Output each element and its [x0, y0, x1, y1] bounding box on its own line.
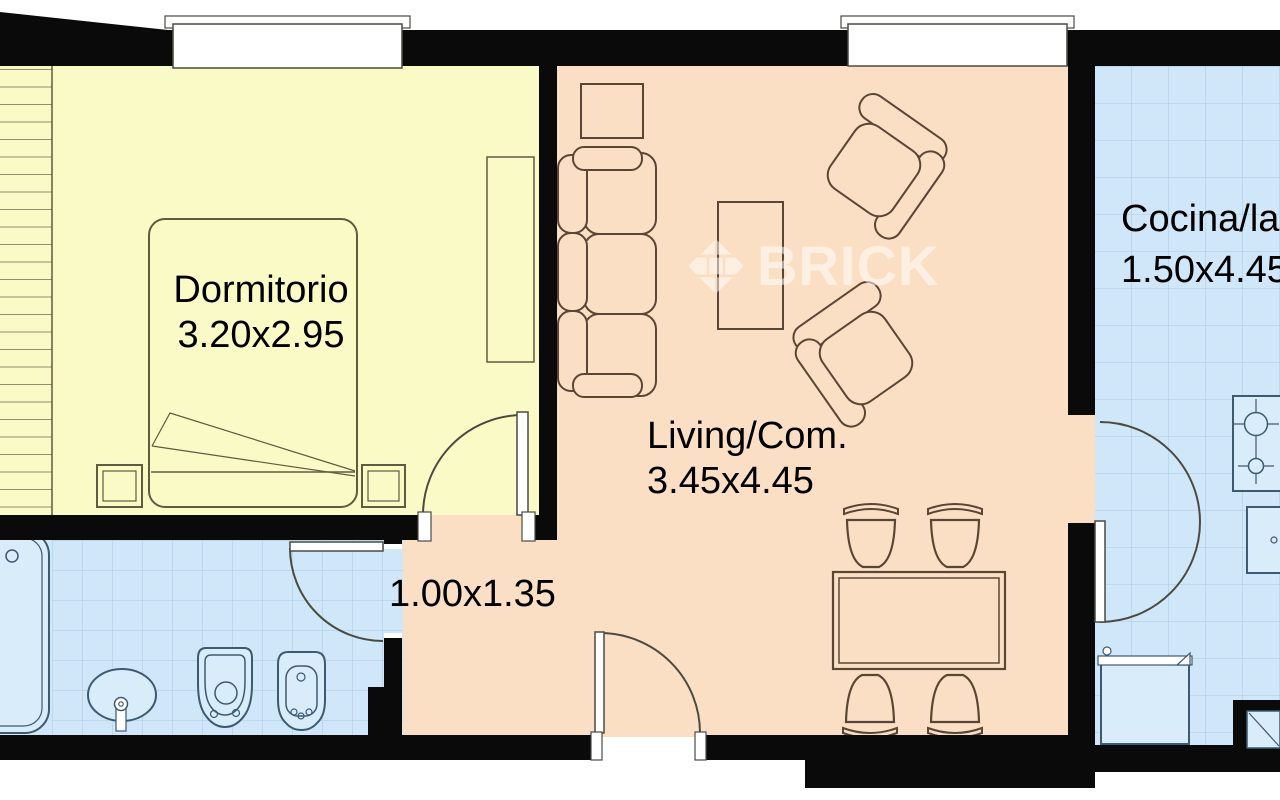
wall [1068, 523, 1095, 788]
side-table [581, 84, 643, 138]
nightstand-right [362, 465, 405, 507]
hall-dims: 1.00x1.35 [389, 572, 556, 617]
bathtub-icon [0, 531, 49, 733]
brick-diamond-logo-icon [688, 238, 744, 294]
wardrobe [487, 157, 534, 362]
wall [0, 515, 421, 540]
wall [1095, 745, 1233, 772]
living-dims: 3.45x4.45 [647, 459, 848, 504]
living-window [841, 16, 1074, 66]
wall [384, 530, 402, 544]
living-name: Living/Com. [647, 414, 848, 459]
wall [368, 687, 402, 735]
wall [0, 735, 591, 760]
stove-icon [1233, 396, 1280, 491]
wall [1068, 66, 1095, 415]
bedroom-label: Dormitorio 3.20x2.95 [136, 268, 386, 358]
wall [539, 66, 557, 540]
sofa [558, 147, 656, 397]
watermark-text: BRICK [757, 237, 939, 294]
hall-label: 1.00x1.35 [389, 572, 556, 617]
wall [706, 735, 805, 760]
bed [149, 219, 357, 507]
nightstand-left [97, 465, 142, 507]
watermark: BRICK [688, 237, 939, 294]
bedroom-name: Dormitorio [136, 268, 386, 313]
sink-icon [1247, 507, 1280, 573]
wall [533, 515, 557, 540]
toilet-icon [198, 648, 252, 727]
bedroom-dims: 3.20x2.95 [136, 313, 386, 358]
bedroom-window [165, 16, 410, 68]
wall [0, 12, 168, 30]
bedroom-doorway-floor [425, 515, 530, 540]
kitchen-label: Cocina/la 1.50x4.45 [1121, 194, 1280, 296]
kitchen-dims: 1.50x4.45 [1121, 245, 1280, 296]
floor-plan-drawing [0, 0, 1280, 800]
kitchen-doorway-floor [1068, 415, 1095, 523]
hall-floor [403, 540, 557, 737]
wall [805, 735, 1095, 788]
closet [0, 66, 52, 515]
laundry-sink-icon [1247, 711, 1280, 748]
kitchen-name: Cocina/la [1121, 194, 1280, 245]
bidet-icon [278, 652, 325, 730]
washing-machine-icon [1098, 647, 1192, 744]
dining-table [833, 572, 1005, 669]
living-label: Living/Com. 3.45x4.45 [647, 414, 848, 504]
floor-plan: Dormitorio 3.20x2.95 Living/Com. 3.45x4.… [0, 0, 1280, 800]
